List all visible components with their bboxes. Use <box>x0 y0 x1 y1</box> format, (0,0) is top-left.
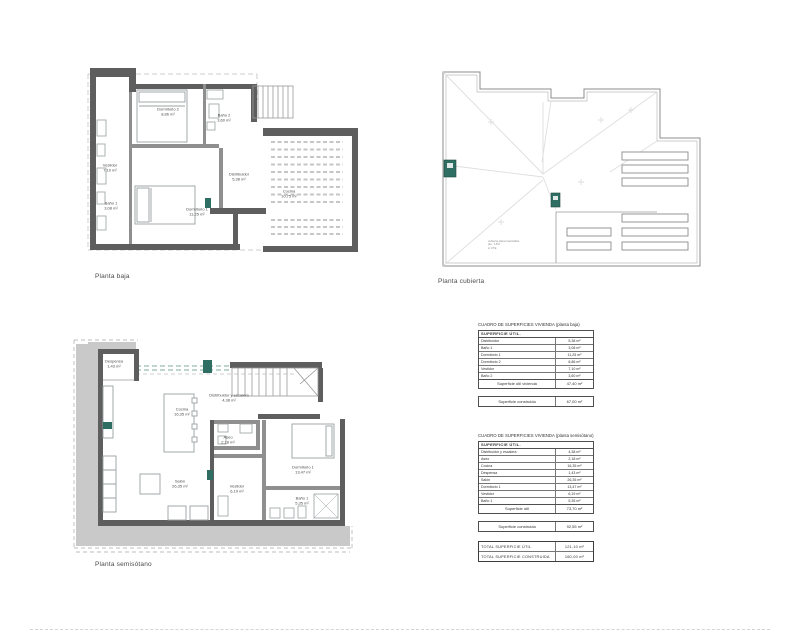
room-label-dormitorio-1: Dormitorio 111,25 m² <box>186 207 208 218</box>
table-row: Dormitorio 111,25 m² <box>479 352 593 359</box>
table-header: SUPERFICIE ÚTIL. <box>479 442 593 449</box>
row-label: Dormitorio 1 <box>479 352 555 358</box>
bed-dormitorio-1 <box>135 186 195 224</box>
bed-dormitorio-1 <box>292 424 334 458</box>
planta-semisotano-drawing <box>70 336 355 562</box>
row-value: 121,10 m² <box>555 542 593 551</box>
row-value: 5,35 m² <box>555 498 593 504</box>
projection-dashes <box>136 366 230 370</box>
row-label: Vestidor <box>479 366 555 372</box>
table-row: Baño 15,35 m² <box>479 498 593 504</box>
table-row: Distribuidor y escalera4,38 m² <box>479 449 593 456</box>
row-label: Cocina <box>479 463 555 469</box>
built-surface-box: Superficie construida 92,55 m² <box>478 521 594 532</box>
room-label-bano-1-ss: Baño 15,35 m² <box>295 496 309 507</box>
row-label: Baño 2 <box>479 373 555 379</box>
table-box: SUPERFICIE ÚTIL. Distribuidor y escalera… <box>478 441 594 514</box>
room-label-vestidor-ss: Vestidor6,19 m² <box>230 484 244 495</box>
row-label: Distribuidor <box>479 338 555 344</box>
room-label-cocina: Cocina10,75 m² <box>281 189 297 200</box>
row-label: Distribuidor y escalera <box>479 449 555 455</box>
row-value: 3,08 m² <box>555 345 593 351</box>
chimney-marker <box>444 160 456 177</box>
room-label-aseo: Aseo2,18 m² <box>221 435 235 446</box>
table-row: Cocina16,35 m² <box>479 463 593 470</box>
table-box: SUPERFICIE ÚTIL. Distribuidor5,38 m²Baño… <box>478 330 594 389</box>
row-value: 8,86 m² <box>555 359 593 365</box>
row-label: Aseo <box>479 456 555 462</box>
table-row: Distribuidor5,38 m² <box>479 338 593 345</box>
table-rows: Distribuidor y escalera4,38 m²Aseo2,18 m… <box>479 449 593 504</box>
row-label: Vestidor <box>479 491 555 497</box>
total-value: 47,40 m² <box>555 380 593 388</box>
row-value: 4,38 m² <box>555 449 593 455</box>
row-value: 3,60 m² <box>555 373 593 379</box>
row-value: 5,38 m² <box>555 338 593 344</box>
table-row: Vestidor6,19 m² <box>479 491 593 498</box>
built-label: Superficie construida <box>479 522 555 531</box>
caption-planta-semisotano: Planta semisótano <box>95 561 152 568</box>
row-label: Baño 1 <box>479 345 555 351</box>
room-label-bano-1: Baño 13,08 m² <box>104 201 118 212</box>
table-title: CUADRO DE SUPERFICIES VIVIENDA (planta s… <box>478 433 594 438</box>
row-value: 16,35 m² <box>555 463 593 469</box>
row-label: Dormitorio 1 <box>479 484 555 490</box>
roof-note: cubierta plana transitable pte. 1,5% s/ … <box>488 240 519 250</box>
sofa <box>103 456 116 512</box>
room-label-salon: Salón26,35 m² <box>172 479 188 490</box>
row-label: TOTAL SUPERFICIE ÚTIL <box>479 542 555 551</box>
table-planta-semisotano: CUADRO DE SUPERFICIES VIVIENDA (planta s… <box>478 433 594 532</box>
room-label-dormitorio-1-ss: Dormitorio 113,47 m² <box>292 465 314 476</box>
stairs <box>253 86 293 118</box>
planta-semisotano-plan <box>70 336 355 562</box>
built-label: Superficie construida <box>479 397 555 406</box>
table-title: CUADRO DE SUPERFICIES VIVIENDA (planta b… <box>478 322 594 327</box>
table-row: Baño 23,60 m² <box>479 373 593 379</box>
planta-cubierta-plan <box>430 62 720 288</box>
row-label: Salón <box>479 477 555 483</box>
room-label-dormitorio-2: Dormitorio 28,86 m² <box>157 107 179 118</box>
table-row: Salón26,35 m² <box>479 477 593 484</box>
total-value: 73,70 m² <box>555 505 593 513</box>
drawing-sheet: Dormitorio 28,86 m² Baño 23,60 m² Vestid… <box>0 0 800 640</box>
row-label: Despensa <box>479 470 555 476</box>
sink-teal <box>103 422 112 429</box>
row-value: 11,25 m² <box>555 352 593 358</box>
table-row: TOTAL SUPERFICIE ÚTIL121,10 m² <box>479 542 593 552</box>
room-label-distribuidor-escalera: Distribuidor y escalera4,38 m² <box>209 393 249 404</box>
room-label-bano-2: Baño 23,60 m² <box>217 113 231 124</box>
row-label: Baño 1 <box>479 498 555 504</box>
table-row: Despensa1,43 m² <box>479 470 593 477</box>
total-label: Superficie útil vivienda <box>479 380 555 388</box>
room-label-vestidor: Vestidor7,10 m² <box>103 163 117 174</box>
row-value: 13,47 m² <box>555 484 593 490</box>
planta-baja-drawing <box>85 60 360 272</box>
row-value: 7,10 m² <box>555 366 593 372</box>
sheet-edge-dash <box>30 629 770 630</box>
room-label-cocina-ss: Cocina16,35 m² <box>174 407 190 418</box>
planta-cubierta-drawing <box>430 62 720 288</box>
row-value: 2,18 m² <box>555 456 593 462</box>
table-row: Aseo2,18 m² <box>479 456 593 463</box>
table-total-row: Superficie útil 73,70 m² <box>479 504 593 513</box>
table-row: Dormitorio 28,86 m² <box>479 359 593 366</box>
room-label-despensa: Despensa1,43 m² <box>105 359 123 370</box>
vent-marker <box>551 193 560 207</box>
total-label: Superficie útil <box>479 505 555 513</box>
built-value: 92,55 m² <box>555 522 593 531</box>
table-header: SUPERFICIE ÚTIL. <box>479 331 593 338</box>
table-planta-baja: CUADRO DE SUPERFICIES VIVIENDA (planta b… <box>478 322 594 407</box>
row-label: Dormitorio 2 <box>479 359 555 365</box>
row-value: 6,19 m² <box>555 491 593 497</box>
row-value: 1,43 m² <box>555 470 593 476</box>
row-value: 160,00 m² <box>555 552 593 561</box>
caption-planta-baja: Planta baja <box>95 273 130 280</box>
built-value: 67,00 m² <box>555 397 593 406</box>
room-label-distribuidor: Distribuidor5,38 m² <box>229 172 249 183</box>
built-surface-box: Superficie construida 67,00 m² <box>478 396 594 407</box>
caption-planta-cubierta: Planta cubierta <box>438 278 484 285</box>
grand-totals-box: TOTAL SUPERFICIE ÚTIL121,10 m²TOTAL SUPE… <box>478 541 594 562</box>
table-rows: Distribuidor5,38 m²Baño 13,08 m²Dormitor… <box>479 338 593 379</box>
row-value: 26,35 m² <box>555 477 593 483</box>
table-row: TOTAL SUPERFICIE CONSTRUIDA160,00 m² <box>479 552 593 561</box>
surface-tables: CUADRO DE SUPERFICIES VIVIENDA (planta b… <box>478 322 594 562</box>
kitchen-island <box>103 386 197 452</box>
row-label: TOTAL SUPERFICIE CONSTRUIDA <box>479 552 555 561</box>
planta-baja-plan <box>85 60 360 272</box>
table-total-row: Superficie útil vivienda 47,40 m² <box>479 379 593 388</box>
table-row: Baño 13,08 m² <box>479 345 593 352</box>
table-row: Dormitorio 113,47 m² <box>479 484 593 491</box>
table-row: Vestidor7,10 m² <box>479 366 593 373</box>
